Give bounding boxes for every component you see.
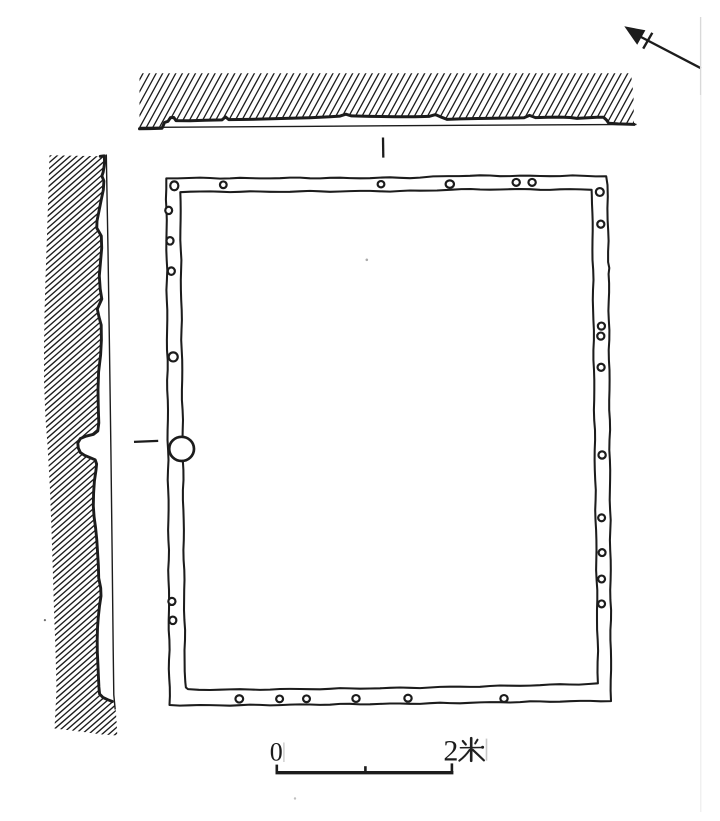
svg-text:2: 2 — [443, 735, 458, 768]
svg-text:0: 0 — [270, 738, 283, 767]
